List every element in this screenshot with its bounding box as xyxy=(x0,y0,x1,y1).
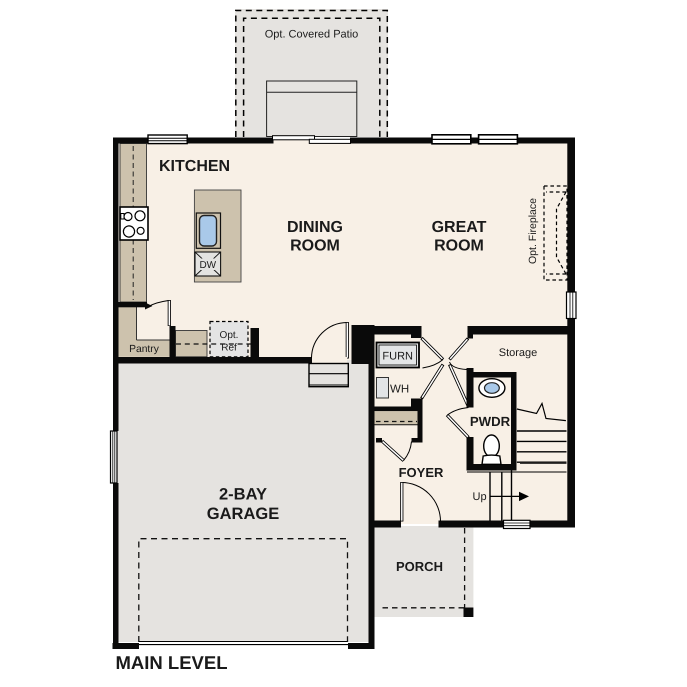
svg-text:GREAT: GREAT xyxy=(432,219,487,236)
svg-text:PORCH: PORCH xyxy=(396,559,443,574)
svg-text:Opt. Fireplace: Opt. Fireplace xyxy=(527,198,539,264)
svg-text:DINING: DINING xyxy=(287,219,343,236)
svg-text:ROOM: ROOM xyxy=(290,238,340,255)
svg-text:FURN: FURN xyxy=(382,351,413,363)
svg-text:FOYER: FOYER xyxy=(399,465,444,480)
svg-text:ROOM: ROOM xyxy=(434,238,484,255)
svg-text:2-BAY: 2-BAY xyxy=(219,486,267,504)
svg-text:Storage: Storage xyxy=(499,347,538,359)
svg-text:PWDR: PWDR xyxy=(470,414,511,429)
svg-text:MAIN LEVEL: MAIN LEVEL xyxy=(116,652,228,673)
svg-text:Up: Up xyxy=(473,491,487,503)
svg-text:WH: WH xyxy=(390,384,409,396)
svg-text:GARAGE: GARAGE xyxy=(207,505,279,523)
svg-text:Opt. Covered Patio: Opt. Covered Patio xyxy=(265,29,359,41)
svg-text:Ref: Ref xyxy=(221,343,237,354)
svg-text:KITCHEN: KITCHEN xyxy=(159,158,230,175)
svg-text:Pantry: Pantry xyxy=(129,344,160,355)
svg-text:DW: DW xyxy=(199,260,216,271)
svg-text:Opt.: Opt. xyxy=(220,330,239,341)
